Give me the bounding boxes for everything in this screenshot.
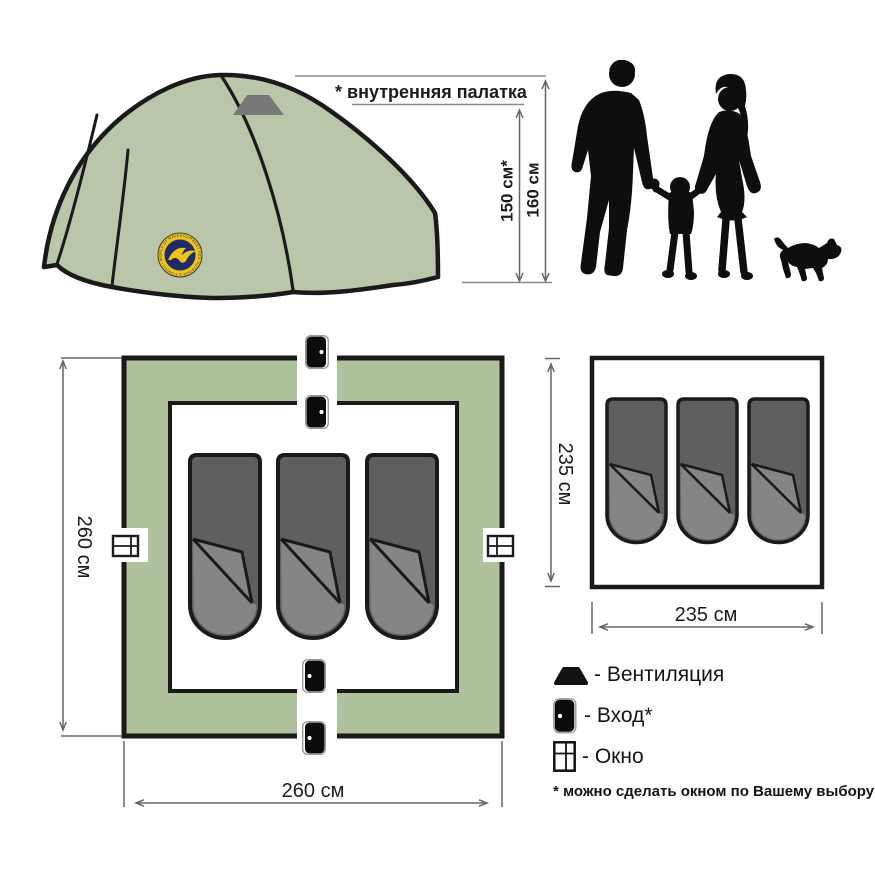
woman-silhouette [695, 74, 761, 280]
legend-row-ventilation: - Вентиляция [553, 663, 724, 687]
legend-row-entrance: - Вход* [553, 698, 653, 734]
outer-height-label: 160 см [524, 162, 543, 217]
entrance-door-icon [306, 396, 329, 429]
entrance-door-icon [306, 336, 329, 369]
sleeping-bag [367, 455, 437, 638]
floor-plan-inner: 235 см 235 см [540, 340, 860, 645]
window-icon-left [113, 536, 138, 556]
entrance-icon [553, 698, 577, 734]
entrance-door-icon [303, 660, 326, 693]
window-legend-icon [553, 741, 576, 772]
sleeping-bag [749, 399, 808, 543]
dog-silhouette [774, 237, 842, 281]
height-dimensions: * внутренняя палатка 150 см* 160 см [290, 60, 570, 300]
inner-tent-note: * внутренняя палатка [335, 82, 528, 102]
legend-row-window: - Окно [553, 741, 644, 772]
inner-plan-height-label: 235 см [554, 443, 576, 506]
family-silhouette [555, 60, 875, 295]
dimension-arrow-150 [516, 110, 523, 281]
inner-height-label: 150 см* [498, 160, 517, 222]
dimension-arrow-160 [542, 81, 549, 281]
inner-plan-width-label: 235 см [675, 604, 738, 626]
floor-plan-outer: 260 см 260 см [40, 325, 520, 815]
sleeping-bag [278, 455, 348, 638]
man-silhouette [571, 60, 659, 276]
window-label: - Окно [582, 745, 644, 769]
outer-plan-width-label: 260 см [282, 780, 345, 802]
entrance-label: - Вход* [584, 704, 653, 728]
sleeping-bag [678, 399, 737, 543]
outer-plan-height-label: 260 см [73, 516, 95, 579]
window-icon-right [488, 536, 513, 556]
ventilation-icon [553, 665, 589, 686]
entrance-door-icon [303, 722, 326, 755]
sleeping-bag [607, 399, 666, 543]
ventilation-label: - Вентиляция [594, 663, 724, 687]
sleeping-bag [190, 455, 260, 638]
legend-footnote: * можно сделать окном по Вашему выбору [553, 783, 874, 800]
